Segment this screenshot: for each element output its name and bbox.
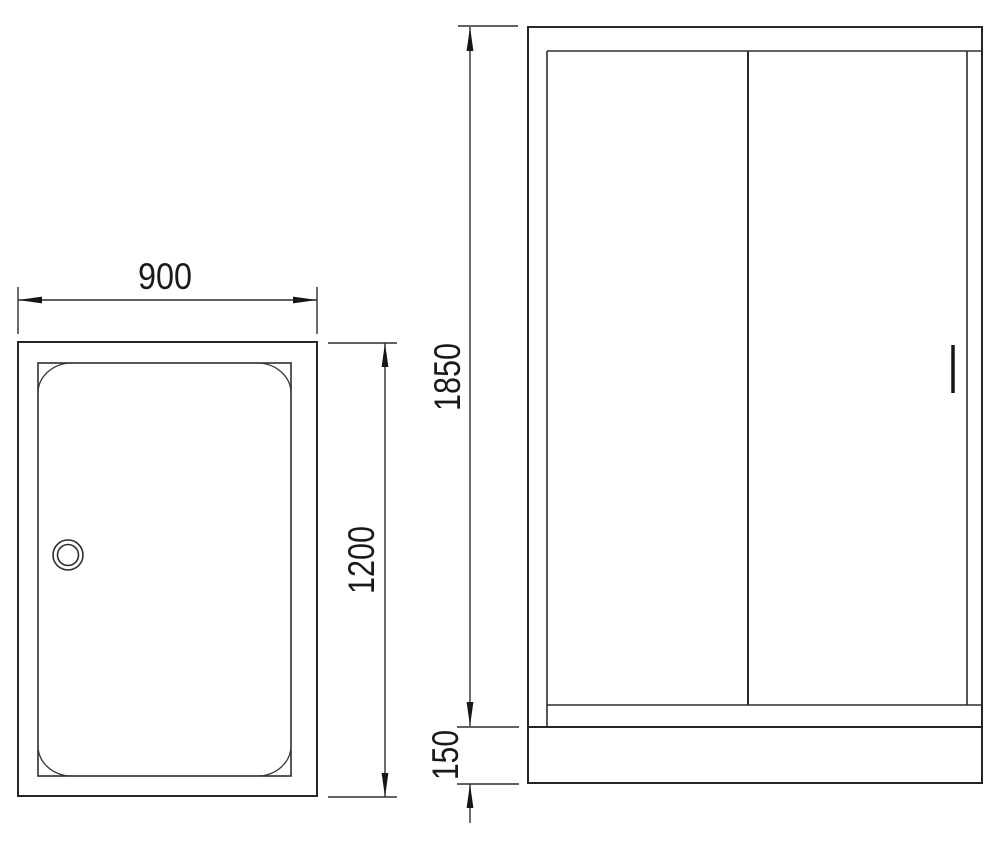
tray-corner-arc-bottom-left [38, 746, 72, 776]
arrowhead-down [467, 702, 474, 726]
arrowhead-down [382, 773, 389, 797]
arrowhead-left [18, 297, 42, 304]
tray-corner-arc-bottom-right [257, 746, 291, 776]
dimension-900: 900 [18, 256, 317, 334]
dimension-1200: 1200 [328, 343, 397, 797]
drain-inner-circle [58, 545, 79, 566]
arrowhead-up [467, 784, 474, 808]
tray-corner-arc-top-left [38, 363, 72, 393]
tray-top-view [18, 342, 317, 796]
technical-drawing-page: 900 1200 1850 [0, 0, 999, 842]
dimension-1850: 1850 [427, 26, 518, 726]
dimension-annotations: 900 1200 1850 [18, 26, 519, 823]
dimension-label-tray-depth: 1200 [341, 526, 382, 594]
tray-inner-rim [38, 363, 291, 776]
dimension-150: 150 [425, 727, 519, 823]
tray-corner-arc-top-right [257, 363, 291, 393]
dimension-label-tray-width: 900 [138, 256, 192, 297]
dimension-label-tray-height: 150 [425, 730, 466, 780]
arrowhead-up [467, 27, 474, 51]
enclosure-front-view [528, 27, 982, 783]
enclosure-outer-frame [528, 27, 982, 783]
dimension-label-door-height: 1850 [427, 343, 468, 411]
arrowhead-up [382, 343, 389, 367]
shower-enclosure-drawing: 900 1200 1850 [0, 0, 999, 842]
arrowhead-right [293, 297, 317, 304]
